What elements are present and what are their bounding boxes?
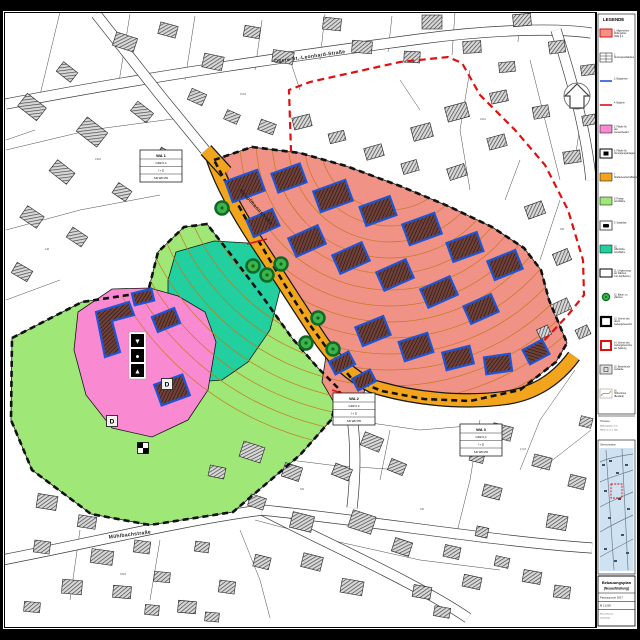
nutzungsschablone-row: SD WD PD [154,176,168,180]
legend-box [598,14,635,414]
existing-building [352,40,373,54]
tree-symbol [331,347,334,350]
plan-version: Fassung vom 2017 [600,596,623,600]
existing-building [553,585,571,599]
nutzungsschablone-row: I + D [158,169,164,173]
side-panel: LEGENDE 1. AllgemeinesWohngebiet(WA) § 4… [596,12,637,628]
legend-title: LEGENDE [603,17,624,22]
plan-subtitle: (Neuaufstellung) [604,587,629,591]
nutzungsschablone-row: SD WD PD [347,419,361,423]
plan-sheet: 146/2148151/3162/1168171/2329333/4340155… [2,10,638,630]
existing-building [218,580,236,594]
legend-swatch [600,125,612,133]
tree-symbol [220,206,223,209]
nutzungsschablone-title: WA 2 [349,396,359,401]
parcel-number: 340 [420,508,425,511]
existing-building [90,549,114,566]
existing-building [582,114,596,126]
existing-building [513,13,532,27]
existing-building [154,571,171,582]
d-marker-label: D [165,381,170,388]
plan-footer-line: Planverfasser [600,613,614,616]
legend-swatch [600,365,612,374]
tree-symbol [265,273,268,276]
existing-building [145,604,160,615]
plan-title: Bebauungsplan [602,580,632,585]
nutzungsschablone-title: WA 3 [476,427,486,432]
existing-building [194,541,209,553]
existing-building [113,585,132,599]
existing-building [24,601,41,612]
existing-building [243,25,261,39]
existing-building [77,515,97,530]
parcel-number: 333/4 [120,573,127,576]
parcel-number: 162/1 [480,118,487,121]
tree-symbol [251,264,254,267]
nutzungsschablone-row: SD WD PD [474,450,488,454]
d-marker-label: D [110,418,115,425]
existing-building [205,612,220,622]
overview-title: Übersichtsplan [600,444,616,447]
legend-swatch [600,197,612,205]
plan-scale: M 1:1000 [600,604,611,608]
notes-line: Hinweise: [600,420,611,423]
legend-swatch [600,173,612,181]
utility-symbol-glyph: ▲ [134,369,141,376]
checker-symbol [143,448,149,454]
legend-swatch [605,296,607,298]
map-canvas[interactable]: 146/2148151/3162/1168171/2329333/4340155… [4,12,596,628]
existing-building [36,494,58,511]
utility-symbol-glyph: ▼ [134,339,141,346]
nutzungsschablone-row: GRZ 0,4 [349,404,360,408]
legend-item-label: 3. Baugrenze [614,77,628,80]
existing-building [133,540,151,554]
nutzungsschablone-row: I + D [351,412,357,416]
parcel-number: 171/2 [520,448,527,451]
nutzungsschablone-title: WA 1 [156,153,166,158]
existing-building [532,105,550,120]
parcel-number: 148 [45,248,50,251]
legend-swatch [600,245,612,253]
existing-building [33,540,51,554]
plan-footer-line: Gemeinde [600,618,611,620]
tree-symbol [279,262,282,265]
existing-building [580,64,595,76]
plan-sheet-viewport: 146/2148151/3162/1168171/2329333/4340155… [0,0,640,640]
legend-item-label: 9. Spielplatz [614,221,627,224]
existing-building [499,61,516,72]
existing-building [546,513,568,530]
nutzungsschablone-row: GRZ 0,4 [156,161,167,165]
legend-item-label: 4. Baulinie [614,102,625,104]
parcel-number: 168 [560,228,565,231]
checker-symbol [138,443,144,449]
tree-symbol [304,341,307,344]
existing-building [475,526,489,538]
tree-symbol [316,316,319,319]
parcel-number: 329 [300,488,305,491]
legend-swatch [600,29,612,37]
legend-swatch [603,224,609,228]
parcel-number: 146/2 [95,158,102,161]
proposed-building [484,354,512,374]
legend-swatch [600,269,612,277]
existing-building [563,150,582,164]
parcel-number: 151/3 [240,93,247,96]
north-arrow-icon [564,83,590,109]
existing-building [463,41,482,54]
existing-building [548,40,566,54]
existing-building [178,600,197,614]
notes-line: Maßangaben in m. [600,426,619,428]
utility-symbol-glyph: ● [135,354,139,361]
nutzungsschablone-row: I + D [478,443,484,447]
existing-building [422,15,442,29]
nutzungsschablone-row: GRZ 0,4 [476,435,487,439]
notes-line: Höhen in m ü. NN. [600,430,618,432]
existing-building [61,579,82,595]
existing-building [322,17,341,31]
legend-swatch [604,152,609,156]
